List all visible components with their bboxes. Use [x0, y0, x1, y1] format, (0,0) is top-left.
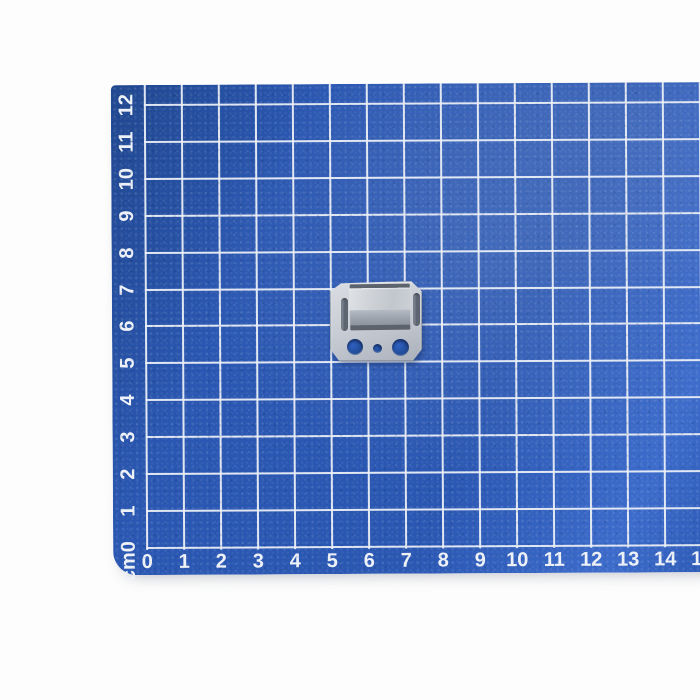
y-axis-label: 3 — [117, 432, 140, 443]
grid-line-horizontal — [146, 433, 700, 438]
y-axis-label: 11 — [115, 131, 138, 152]
x-axis-label: 9 — [475, 549, 486, 572]
clip-hole-left — [347, 339, 363, 355]
grid-line-vertical — [255, 84, 259, 549]
grid-line-horizontal — [145, 249, 700, 254]
x-axis-label: 5 — [327, 550, 338, 573]
grid-line-vertical — [551, 83, 555, 548]
clip-slot-left — [341, 298, 348, 331]
x-axis-label: 15 — [691, 548, 700, 571]
grid-line-horizontal — [146, 507, 700, 512]
grid-line-vertical — [144, 85, 148, 550]
clip-slot-right — [413, 293, 420, 326]
grid-line-horizontal — [145, 286, 700, 291]
y-axis-label: 4 — [117, 395, 140, 406]
grid-line-horizontal — [145, 359, 700, 364]
grid-line-horizontal — [144, 101, 700, 106]
x-axis-label: 8 — [438, 549, 449, 572]
x-axis-label: 2 — [216, 551, 227, 574]
grid-line-vertical — [662, 82, 666, 547]
x-axis-label: 11 — [544, 549, 565, 572]
clip-raised-channel — [350, 284, 411, 331]
grid-line-horizontal — [145, 322, 700, 327]
grid-line-horizontal — [144, 175, 700, 180]
grid-line-horizontal — [144, 212, 700, 217]
grid-line-vertical — [218, 85, 222, 550]
y-axis-label: 10 — [116, 168, 139, 190]
channel-top-face — [349, 288, 411, 311]
x-axis-label: 6 — [364, 550, 375, 573]
x-axis-label: 7 — [401, 550, 412, 573]
grid-line-vertical — [477, 83, 481, 548]
y-axis-label: 5 — [117, 358, 140, 369]
grid-line-vertical — [588, 83, 592, 548]
grid-line-horizontal — [144, 138, 700, 143]
x-axis-label: 0 — [142, 551, 153, 574]
grid-line-vertical — [181, 85, 185, 550]
grid-line-vertical — [514, 83, 518, 548]
y-axis-label: 6 — [116, 321, 139, 332]
grid-line-horizontal — [146, 470, 700, 475]
x-axis-label: 10 — [506, 549, 528, 572]
y-axis-label: 1 — [117, 506, 140, 517]
x-axis-label: 12 — [580, 549, 602, 572]
x-axis-label: 13 — [617, 548, 639, 571]
x-axis-label: 3 — [253, 550, 264, 573]
y-axis-label: 8 — [116, 247, 139, 258]
x-axis-label: 4 — [290, 550, 301, 573]
y-axis-label: 12 — [115, 94, 138, 116]
grid-line-vertical — [292, 84, 296, 549]
clip-hole-right — [392, 339, 409, 356]
y-axis-label: 2 — [117, 469, 140, 480]
y-axis-label: 7 — [116, 284, 139, 295]
metal-clip — [330, 281, 422, 361]
y-axis-label: 9 — [116, 210, 139, 221]
clip-hole-center — [373, 344, 382, 353]
channel-bottom-edge — [350, 325, 410, 331]
product-photo: 0123456789101112131415123456789101112 cm… — [0, 0, 700, 700]
grid-line-vertical — [440, 83, 444, 548]
grid-line-horizontal — [145, 396, 700, 401]
unit-label: cm0 — [118, 541, 141, 581]
x-axis-label: 1 — [179, 551, 190, 574]
grid-line-vertical — [625, 83, 629, 548]
x-axis-label: 14 — [654, 548, 676, 571]
